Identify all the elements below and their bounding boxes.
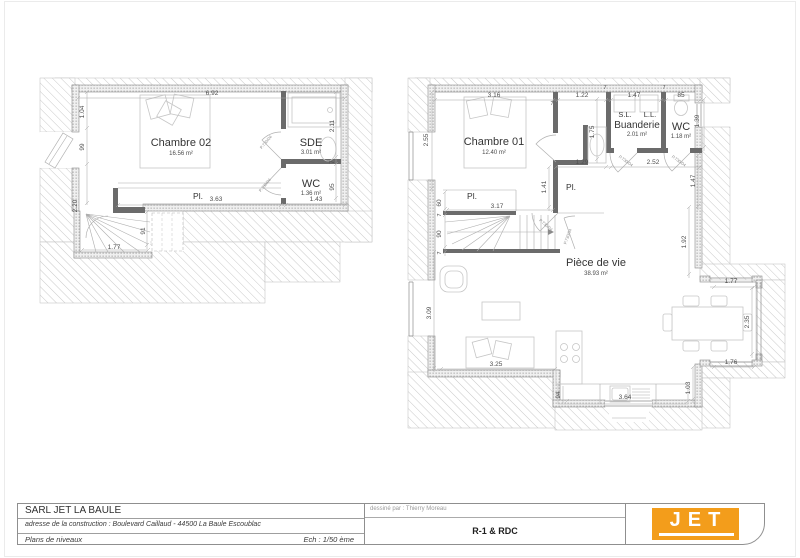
title-block-left: SARL JET LA BAULE adresse de la construc… <box>18 504 365 544</box>
dim-label: 3.25 <box>490 361 503 368</box>
plan-r1-drawing: P.730/04 P.730/04 6.92 1.04 99 2.20 2.11… <box>30 70 385 313</box>
dim-label: 1.76 <box>725 359 738 366</box>
room-label-sde: SDE <box>300 137 323 149</box>
room-label-piece-de-vie: Pièce de vie <box>566 257 626 269</box>
room-area-wc: 1.18 m² <box>671 134 691 140</box>
room-area-chambre01: 12.40 m² <box>482 150 506 156</box>
dim-label: 95 <box>329 183 336 191</box>
dim-label: 1.75 <box>589 125 596 138</box>
room-label-placard-stairs: Pl. <box>467 191 477 201</box>
dim-label: 3.17 <box>491 203 504 210</box>
room-label-wc: WC <box>302 178 320 190</box>
door-tag: P.730/04 <box>671 154 688 168</box>
label-seche-linge: S.L. <box>618 110 631 119</box>
dim-label: 2.35 <box>744 315 751 328</box>
dim-label: 1.22 <box>576 92 589 99</box>
title-block-logo-cell: JET <box>626 504 764 544</box>
room-label-buanderie: Buanderie <box>614 120 660 131</box>
room-label-wc: WC <box>672 121 690 133</box>
dim-label: 91 <box>140 227 147 235</box>
stair-void-dashed <box>152 213 183 251</box>
title-block-middle: dessiné par : Thierry Moreau R-1 & RDC <box>365 504 626 544</box>
room-area-piece-de-vie: 38.93 m² <box>584 271 608 277</box>
dining-table <box>663 296 752 351</box>
armchair <box>440 266 467 292</box>
drawing-sheet: P.730/04 P.730/04 6.92 1.04 99 2.20 2.11… <box>0 0 800 558</box>
dim-label: 1.92 <box>681 235 688 248</box>
jet-logo: JET <box>652 508 739 540</box>
dim-label: 1.43 <box>310 196 323 203</box>
dim-label: 7 <box>329 160 336 164</box>
dim-label: 85 <box>677 92 685 99</box>
dim-label: 1.39 <box>694 114 701 127</box>
dim-label: 3.09 <box>426 306 433 319</box>
dim-label: 7 <box>550 101 553 107</box>
dim-label: 3.64 <box>619 394 632 401</box>
jet-logo-text: JET <box>663 509 728 532</box>
dim-label: 1.03 <box>685 381 692 394</box>
room-area-chambre02: 16.56 m² <box>169 151 193 157</box>
room-area-wc: 1.36 m² <box>301 191 321 197</box>
dim-label: 1.29 <box>576 159 589 166</box>
dim-label: 7 <box>437 251 443 254</box>
dim-label: 60 <box>436 199 443 207</box>
document-title-row: Plans de niveaux Ech : 1/50 ème <box>18 534 364 544</box>
room-label-chambre02: Chambre 02 <box>151 137 212 149</box>
dim-label: 3.16 <box>488 92 501 99</box>
rear-door <box>605 400 652 422</box>
room-label-chambre01: Chambre 01 <box>464 136 525 148</box>
sheet-name: R-1 & RDC <box>365 518 625 544</box>
door-tag: P.730/04 <box>618 154 635 168</box>
jet-logo-underline <box>659 533 734 536</box>
dim-label: 1.41 <box>541 180 548 193</box>
dim-label: 1.47 <box>690 174 697 187</box>
dim-label: 1.77 <box>725 278 738 285</box>
document-title: Plans de niveaux <box>25 535 82 544</box>
room-label-placard-hall: Pl. <box>566 182 576 192</box>
company-name: SARL JET LA BAULE <box>18 504 364 519</box>
construction-address: adresse de la construction : Boulevard C… <box>18 519 364 534</box>
dim-label: 7 <box>662 85 665 91</box>
dim-label: 94 <box>555 391 562 399</box>
dim-label: 7 <box>603 85 606 91</box>
dim-label: 90 <box>436 230 443 238</box>
dim-label: 6.92 <box>206 90 219 97</box>
title-block: SARL JET LA BAULE adresse de la construc… <box>17 503 765 545</box>
room-area-buanderie: 2.01 m² <box>627 132 647 138</box>
dim-label: 2.55 <box>423 133 430 146</box>
dim-label: 1.04 <box>79 105 86 118</box>
dim-label: 3.63 <box>210 196 223 203</box>
dim-label: 1.47 <box>628 92 641 99</box>
dim-label: 2.11 <box>329 120 336 133</box>
room-label-placard: Pl. <box>193 191 203 201</box>
coffee-table <box>482 302 520 320</box>
drawing-scale: Ech : 1/50 ème <box>304 535 354 544</box>
label-lave-linge: L.L. <box>644 110 657 119</box>
drawn-by: dessiné par : Thierry Moreau <box>365 504 625 518</box>
dim-label: 7 <box>437 213 443 216</box>
door-tag: P.730/04 <box>562 227 572 245</box>
room-area-sde: 3.01 m² <box>301 150 321 156</box>
dim-label: 2.52 <box>647 159 660 166</box>
bed-chambre01 <box>464 97 526 168</box>
dim-label: 99 <box>79 143 86 151</box>
dim-label: 1.77 <box>108 244 121 251</box>
dim-label: 2.20 <box>72 199 79 212</box>
plan-rdc-drawing: P.730/04 P.730/04 P.730/04 P.730/04 3.16… <box>400 70 800 438</box>
